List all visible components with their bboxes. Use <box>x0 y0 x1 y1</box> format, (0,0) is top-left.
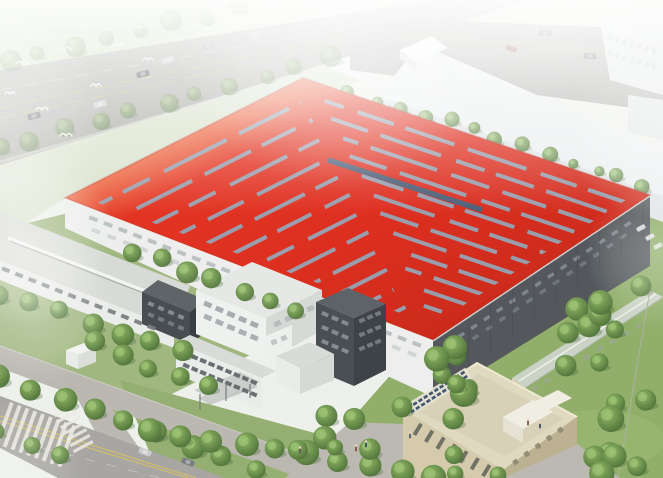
haze-veil <box>0 0 663 478</box>
aerial-rendering <box>0 0 663 478</box>
scene-svg <box>0 0 663 478</box>
